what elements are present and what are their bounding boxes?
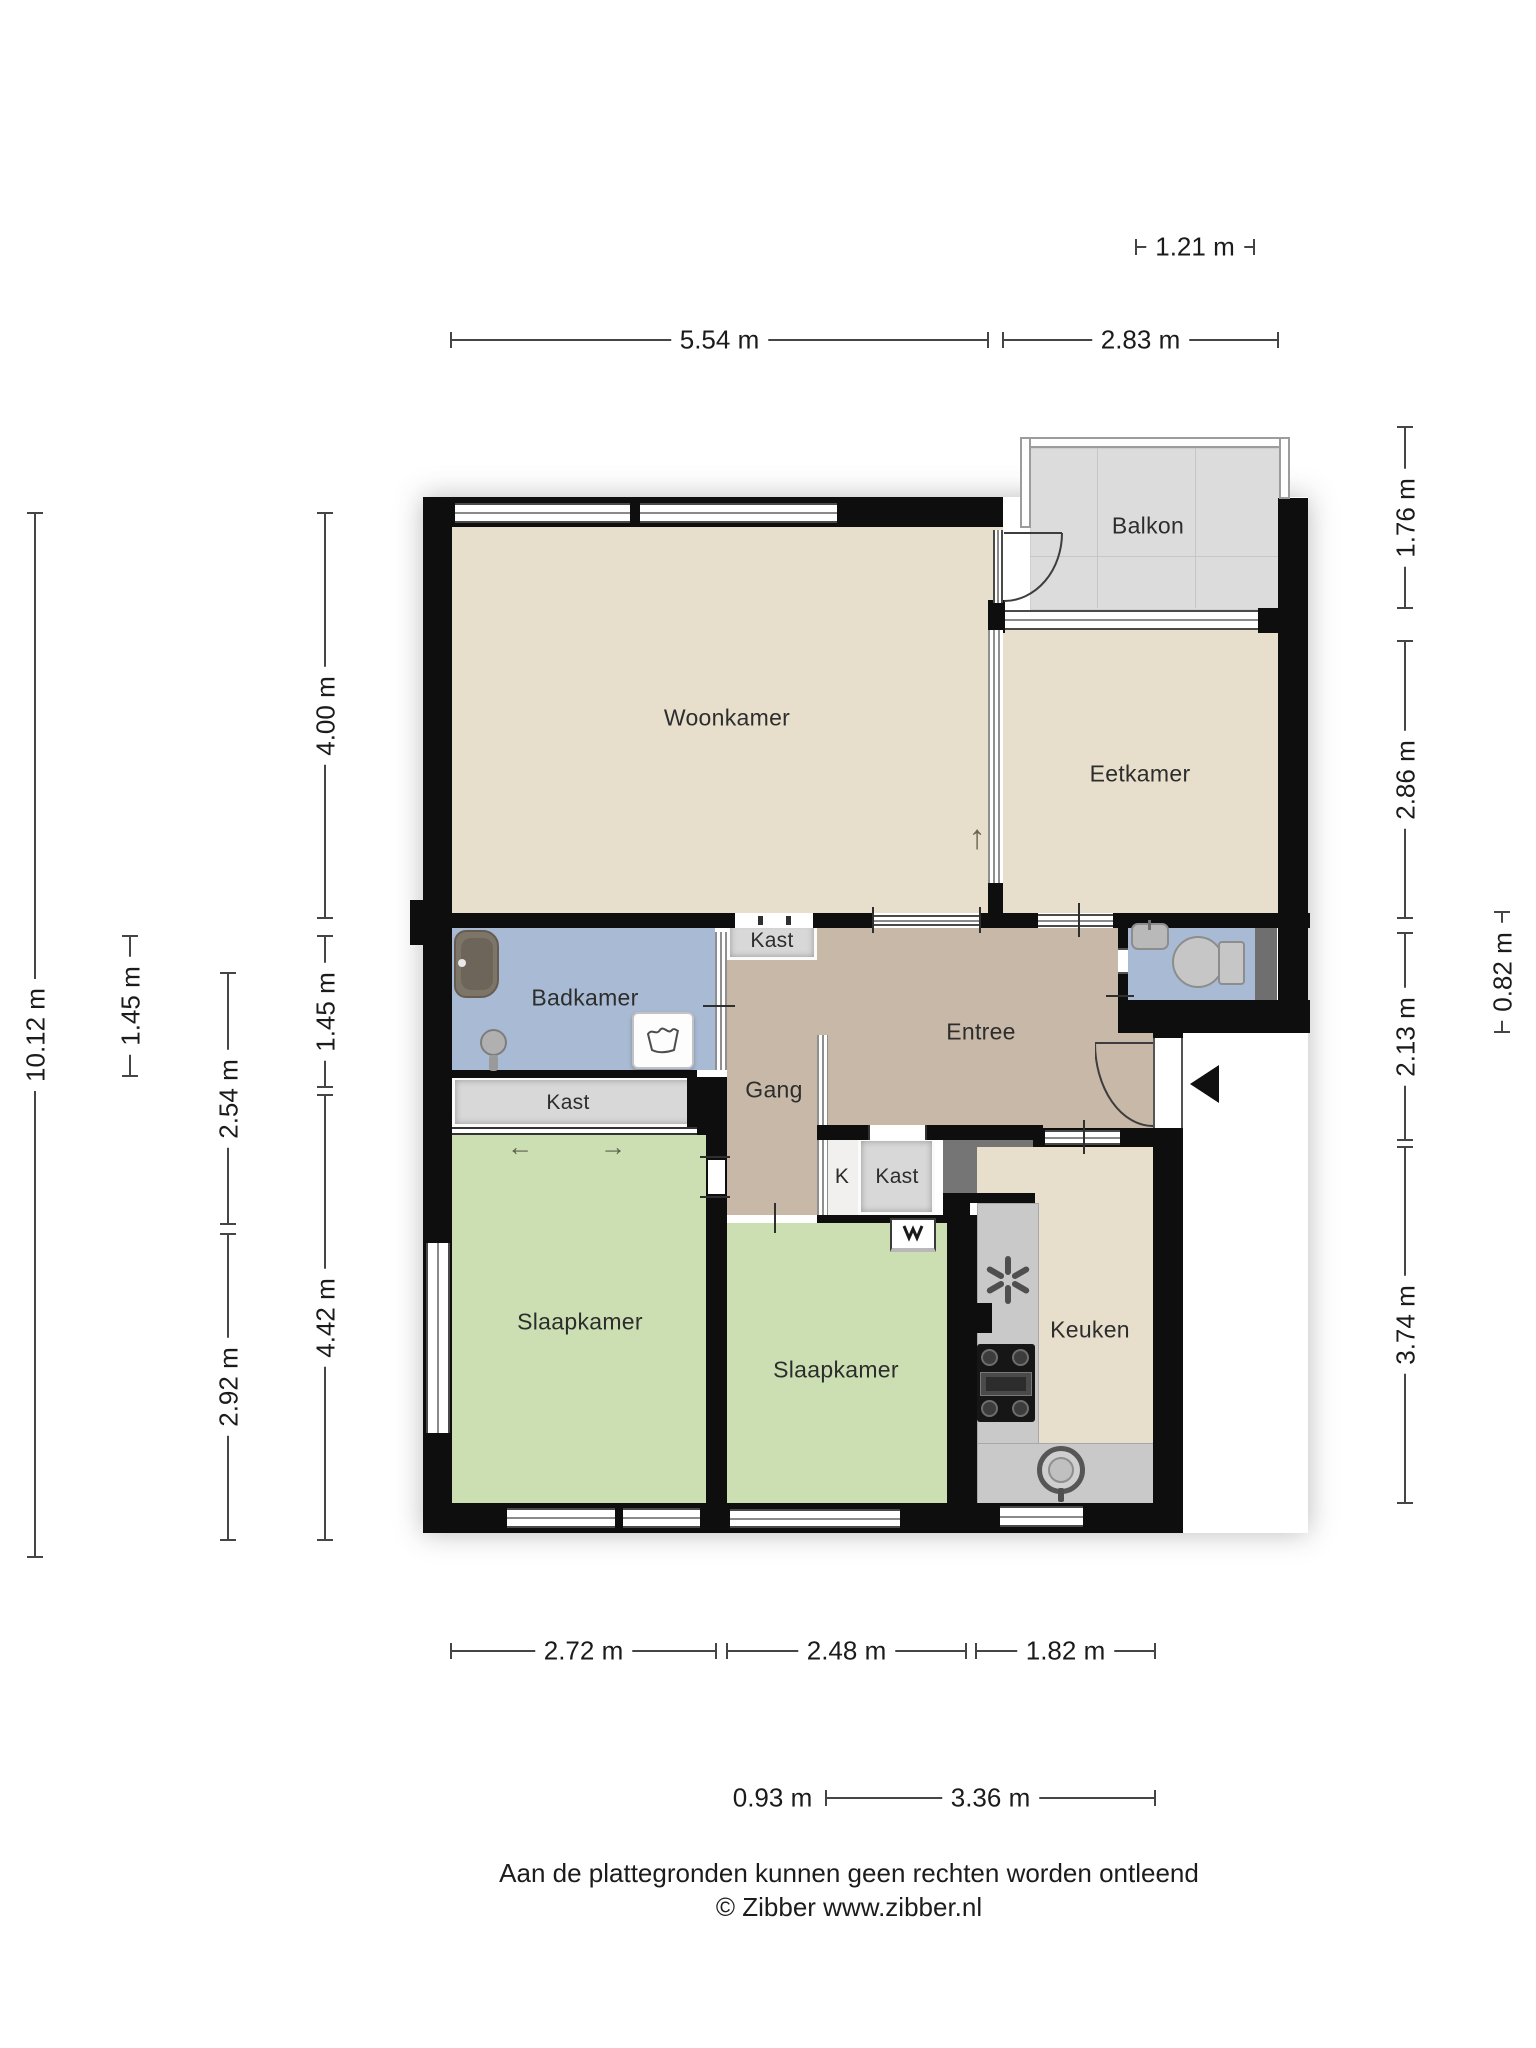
bifold-mark [758, 916, 763, 925]
dimension-label: 3.74 m [1391, 1276, 1422, 1374]
dimension-label: 4.42 m [311, 1269, 342, 1367]
door-tick [703, 1005, 735, 1007]
laundry-tub-glyph [646, 1026, 680, 1054]
stove-burner [1012, 1400, 1029, 1417]
glass-wall-badkamer-gang [715, 932, 727, 1070]
dimension-label: 3.36 m [942, 1783, 1040, 1814]
toilet-sink-tap [1148, 920, 1151, 930]
door-tick [872, 907, 874, 933]
door-tick [1106, 995, 1134, 997]
disclaimer: Aan de plattegronden kunnen geen rechten… [499, 1856, 1199, 1924]
window-slaapkamer1-bottom-2 [623, 1508, 700, 1528]
glass-wall-gang-lower [817, 1140, 828, 1215]
toilet-shaft [1255, 923, 1277, 1002]
bathroom-sink-icon [480, 1029, 507, 1056]
glass-wall-gang-upper [817, 1035, 828, 1125]
entree-door-frame [1153, 1038, 1183, 1128]
dimension-label: 1.21 m [1146, 232, 1244, 263]
opening-woonkamer-entree [873, 915, 980, 926]
window-woonkamer-top-1 [455, 503, 630, 523]
wall-badkamer-bottom [450, 1070, 697, 1078]
balkon-rail-right [1279, 437, 1290, 499]
balkon-rail-left [1020, 437, 1031, 528]
door-vent-glyph [901, 1224, 925, 1242]
wall-toilet-bottom [1118, 1000, 1310, 1033]
dimension-label: 1.82 m [1017, 1636, 1115, 1667]
slide-left-arrow-icon: ← [507, 1132, 533, 1163]
window-woonkamer-top-2 [640, 503, 837, 523]
wall-shaft-bottom [943, 1193, 1035, 1203]
window-slaapkamer1-left [426, 1243, 450, 1433]
dimension-label: 2.86 m [1391, 731, 1422, 829]
copyright-line: © Zibber www.zibber.nl [499, 1890, 1199, 1924]
room-label-balkon: Balkon [1112, 513, 1184, 540]
opening-kast-hal [868, 1125, 927, 1140]
bathroom-sink-pedestal [489, 1055, 498, 1071]
opening-slaapkamer1-door [708, 1160, 725, 1194]
dimension-label: 1.76 m [1391, 469, 1422, 567]
kitchen-sink-inner [1048, 1457, 1074, 1483]
kitchen-sink-tap [1058, 1488, 1064, 1502]
opening-kast-woonkamer [735, 913, 813, 928]
dimension-label: 2.72 m [535, 1636, 633, 1667]
door-tick [1083, 1120, 1085, 1154]
room-label-slaapkamer2: Slaapkamer [773, 1357, 899, 1384]
disclaimer-line1: Aan de plattegronden kunnen geen rechten… [499, 1856, 1199, 1890]
toilet-tank [1218, 941, 1245, 985]
room-label-keuken: Keuken [1050, 1317, 1130, 1344]
wall-glass-stub [988, 883, 1003, 913]
wall-mid [813, 913, 873, 928]
dimension-label: 0.82 m [1488, 923, 1519, 1021]
balkon-tile-line [1097, 448, 1098, 608]
stove-burner [981, 1349, 998, 1366]
dimension-label: 2.48 m [798, 1636, 896, 1667]
wall-mid [980, 913, 1038, 928]
door-tick [700, 1196, 730, 1198]
sliding-door-rail [452, 1127, 697, 1135]
room-label-badkamer: Badkamer [531, 985, 638, 1012]
room-label-kast-woonkamer: Kast [750, 929, 793, 953]
dimension-label: 10.12 m [21, 979, 52, 1091]
room-label-slaapkamer1: Slaapkamer [517, 1309, 643, 1336]
up-arrow-icon: ↑ [969, 819, 986, 858]
dimension-label: 5.54 m [671, 325, 769, 356]
dimension-label: 0.93 m [724, 1783, 822, 1814]
bifold-mark [786, 916, 791, 925]
dimension-label: 2.92 m [214, 1338, 245, 1436]
room-label-kast-hal: Kast [875, 1165, 918, 1189]
window-entree-eetkamer [1038, 914, 1113, 927]
wall-keuken-left [947, 1215, 977, 1503]
balkon-tile-line [1030, 556, 1280, 557]
entree-door-swing [1095, 1042, 1155, 1128]
window-slaapkamer1-bottom-1 [507, 1508, 615, 1528]
dimension-label: 1.45 m [311, 963, 342, 1061]
wall-left-notch [410, 900, 423, 945]
window-slaapkamer2-bottom [730, 1509, 900, 1528]
room-label-eetkamer: Eetkamer [1090, 761, 1191, 788]
dimension-label: 2.83 m [1092, 325, 1190, 356]
window-eetkamer-balkon [1005, 610, 1258, 630]
balkon-door-swing [1003, 531, 1065, 603]
door-tick [979, 907, 981, 933]
extractor-fan-icon [981, 1253, 1035, 1307]
balkon-tile-line [1195, 448, 1196, 608]
door-tick [774, 1203, 776, 1233]
dimension-label: 1.45 m [116, 957, 147, 1055]
balkon-door-frame [993, 530, 1003, 603]
window-keuken-bottom [1000, 1506, 1083, 1527]
wall-keuken-pier [977, 1303, 992, 1333]
room-label-woonkamer: Woonkamer [664, 705, 790, 732]
floorplan-page: ← → ↑ Woonkamer Eetkamer Balkon [0, 0, 1536, 2048]
wall-balkon-corner-left [988, 600, 1005, 633]
toilet-door [1118, 948, 1128, 974]
wall-kblock-top [817, 1125, 868, 1140]
entrance-arrow [1190, 1065, 1219, 1103]
door-tick [1078, 903, 1080, 937]
slide-right-arrow-icon: → [600, 1132, 626, 1163]
bathtub-faucet [458, 959, 466, 967]
room-entree-floor [817, 928, 1118, 1033]
wall-mid [423, 913, 735, 928]
toilet-bowl-icon [1172, 936, 1224, 988]
stove-burner [1012, 1349, 1029, 1366]
wall-kblock-top [927, 1125, 1043, 1140]
room-label-kast-badkamer: Kast [546, 1091, 589, 1115]
dimension-label: 2.13 m [1391, 988, 1422, 1086]
stove-burner [981, 1400, 998, 1417]
opening-gang-slaapkamer2 [737, 1215, 803, 1223]
dimension-label: 2.54 m [214, 1050, 245, 1148]
room-label-gang: Gang [745, 1077, 802, 1104]
glass-wall-woonkamer-eetkamer [988, 630, 1003, 883]
room-label-entree: Entree [946, 1019, 1016, 1046]
wall-balkon-corner-right [1258, 608, 1278, 633]
room-label-k: K [835, 1165, 849, 1189]
balkon-rail-top [1020, 437, 1290, 448]
stove-drawer-inner [986, 1377, 1026, 1391]
door-tick [700, 1156, 730, 1158]
wall-right-upper [1278, 498, 1308, 1033]
dimension-label: 4.00 m [311, 667, 342, 765]
